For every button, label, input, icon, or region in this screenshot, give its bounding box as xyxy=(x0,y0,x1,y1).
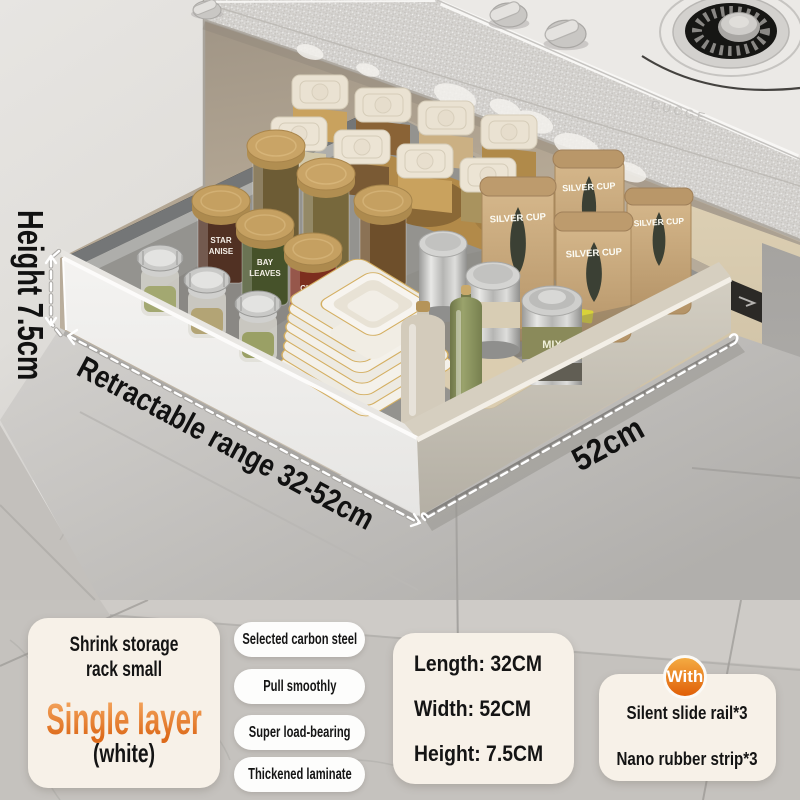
svg-text:BAY: BAY xyxy=(257,258,274,267)
svg-text:Height 7.5cm: Height 7.5cm xyxy=(10,210,51,380)
svg-text:LEAVES: LEAVES xyxy=(249,269,281,278)
svg-text:ANISE: ANISE xyxy=(209,247,234,256)
svg-text:STAR: STAR xyxy=(210,236,231,245)
